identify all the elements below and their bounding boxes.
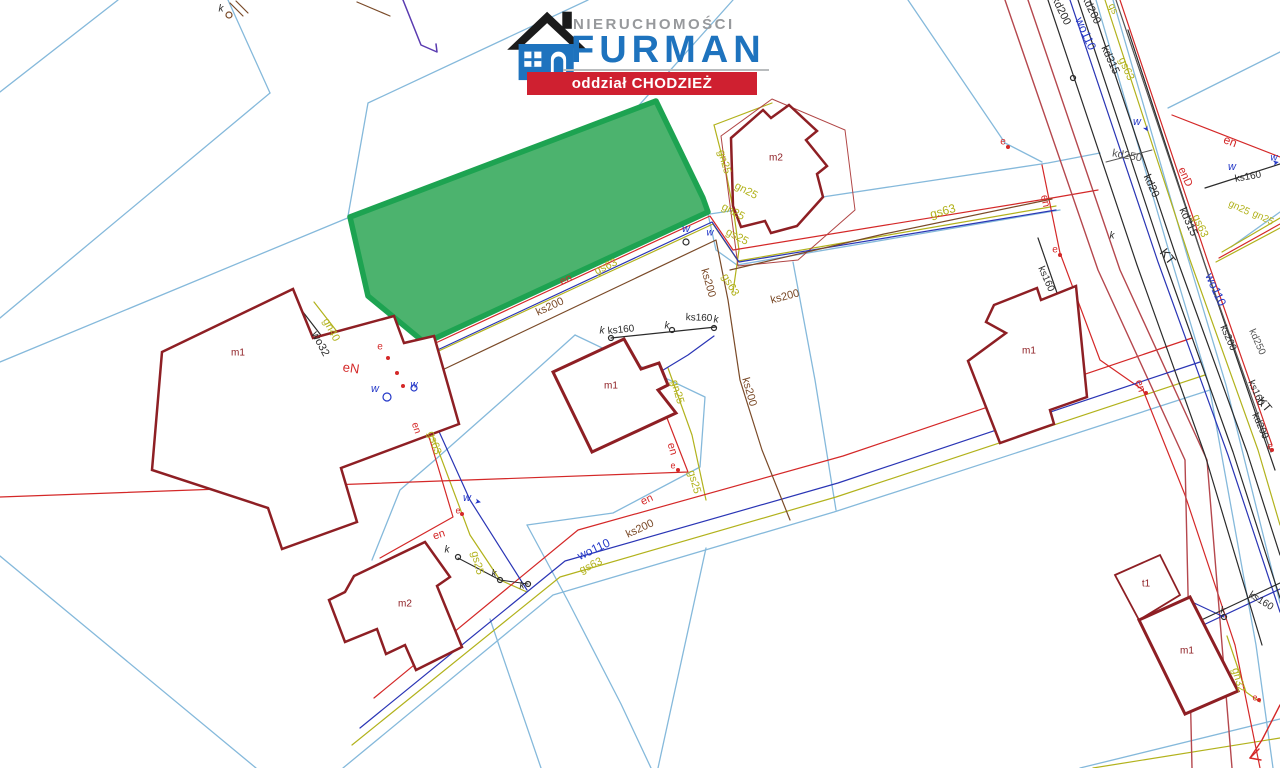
building-m2-top-label: m2: [769, 153, 783, 164]
map-label-w: w: [706, 228, 714, 239]
map-label-e: e: [1267, 442, 1273, 453]
utility-line: [1128, 30, 1275, 470]
map-label-e: e: [1052, 245, 1058, 256]
map-label-w: w: [410, 380, 418, 391]
map-label-gn25: gn25: [1251, 208, 1276, 228]
map-label-ks160: ks160: [607, 323, 635, 337]
map-label-w: w: [682, 223, 691, 235]
utility-node-dot: [1006, 145, 1010, 149]
map-label-ks200: ks200: [534, 295, 566, 318]
building-m1-left-label: m1: [231, 348, 245, 359]
map-label-w: w: [463, 492, 472, 504]
utility-line: [357, 2, 390, 16]
utility-node-dot: [1144, 391, 1148, 395]
map-label-ks200: ks200: [739, 376, 759, 408]
building-m2-bottom: [329, 542, 462, 670]
map-label-w: w: [1228, 161, 1237, 173]
map-label-kd250: kd250: [1111, 147, 1143, 164]
utility-node-dot: [395, 371, 399, 375]
map-label-kd200: kd200: [1249, 411, 1270, 441]
map-label-k: k: [600, 326, 606, 337]
utility-line: [1219, 224, 1280, 258]
map-label-k: k: [714, 315, 720, 326]
map-label-e: e: [455, 505, 460, 515]
map-label-e: e: [377, 342, 383, 353]
parcel-line: [0, 556, 256, 768]
map-label-k: k: [445, 545, 451, 556]
cadastral-map: m1m1m2m2m1t1m1kgn40wo32eNewwengs63ks200k…: [0, 0, 1280, 768]
parcel-line: [908, 0, 1042, 162]
map-label-kd20: kd20: [1141, 173, 1162, 200]
map-label-kd250: kd250: [1246, 327, 1267, 357]
parcel-line: [1168, 52, 1280, 108]
logo-branch-banner: oddział CHODZIEŻ: [527, 72, 757, 95]
utility-line: [360, 362, 1200, 728]
map-label-w: w: [371, 383, 380, 395]
utility-node-dot: [676, 468, 680, 472]
utility-node-circle: [226, 12, 232, 18]
map-label-en: en: [665, 441, 680, 456]
utility-node-dot: [1257, 698, 1261, 702]
map-label-eN: eN: [342, 359, 361, 376]
building-m1-right-label: m1: [1022, 346, 1036, 357]
utility-line: [1250, 758, 1261, 760]
utility-node-circle: [683, 239, 689, 245]
map-label-➤: ➤: [1272, 157, 1280, 167]
map-label-ks160: ks160: [685, 312, 712, 324]
building-m1-center: [553, 339, 676, 452]
map-label-ks200: ks200: [698, 267, 718, 299]
map-label-gn25: gn25: [1227, 198, 1252, 218]
map-label-➤: ➤: [474, 497, 483, 507]
parcel-line: [228, 0, 270, 93]
parcel-line: [0, 93, 270, 318]
parcel-line: [0, 0, 118, 92]
map-label-k: k: [1110, 231, 1116, 242]
utility-line: [1070, 0, 1280, 612]
parcel-line: [343, 390, 1210, 768]
map-label-en: en: [431, 527, 446, 542]
map-label-gn25: gn25: [668, 379, 686, 406]
map-label-w: w: [1133, 116, 1142, 128]
parcel-line: [658, 548, 706, 768]
map-label-e: e: [1252, 692, 1257, 702]
logo-text-line2: FURMAN: [571, 29, 766, 72]
building-m1-center-label: m1: [604, 381, 618, 392]
utility-line: [1078, 0, 1280, 598]
map-label-ks160: ks160: [1234, 169, 1263, 185]
map-label-e: e: [1000, 137, 1006, 148]
map-label-en: en: [1038, 194, 1052, 208]
cadastral-map-page: m1m1m2m2m1t1m1kgn40wo32eNewwengs63ks200k…: [0, 0, 1280, 768]
utility-line: [403, 0, 437, 52]
building-m1-bottomright-label: m1: [1180, 646, 1194, 657]
utility-line: [1216, 228, 1280, 262]
utility-node-dot: [401, 384, 405, 388]
logo-underline: [563, 69, 769, 71]
utility-node-circle: [456, 555, 461, 560]
building-m2-bottom-label: m2: [398, 599, 412, 610]
building-t1-label: t1: [1142, 579, 1151, 590]
map-label-ks200: ks200: [624, 517, 656, 540]
utility-node-dot: [1058, 253, 1062, 257]
parcel-line: [1113, 0, 1280, 603]
map-label-gs63: gs63: [928, 201, 957, 221]
map-label-en: en: [639, 492, 655, 508]
map-label-wo110: wo110: [1202, 270, 1229, 308]
agency-logo: NIERUCHOMOŚCI FURMAN oddział CHODZIEŻ: [503, 2, 775, 94]
map-label-k: k: [219, 4, 225, 15]
map-label-e: e: [670, 460, 675, 470]
utility-node-dot: [386, 356, 390, 360]
utility-node-dot: [460, 512, 464, 516]
map-label-gs63: gs63: [719, 272, 741, 299]
map-label-ks200: ks200: [1217, 324, 1238, 353]
parcel-line: [1080, 719, 1280, 768]
utility-node-circle: [712, 326, 717, 331]
map-label-➤: ➤: [1141, 124, 1152, 135]
map-label-ks200: ks200: [769, 287, 800, 306]
